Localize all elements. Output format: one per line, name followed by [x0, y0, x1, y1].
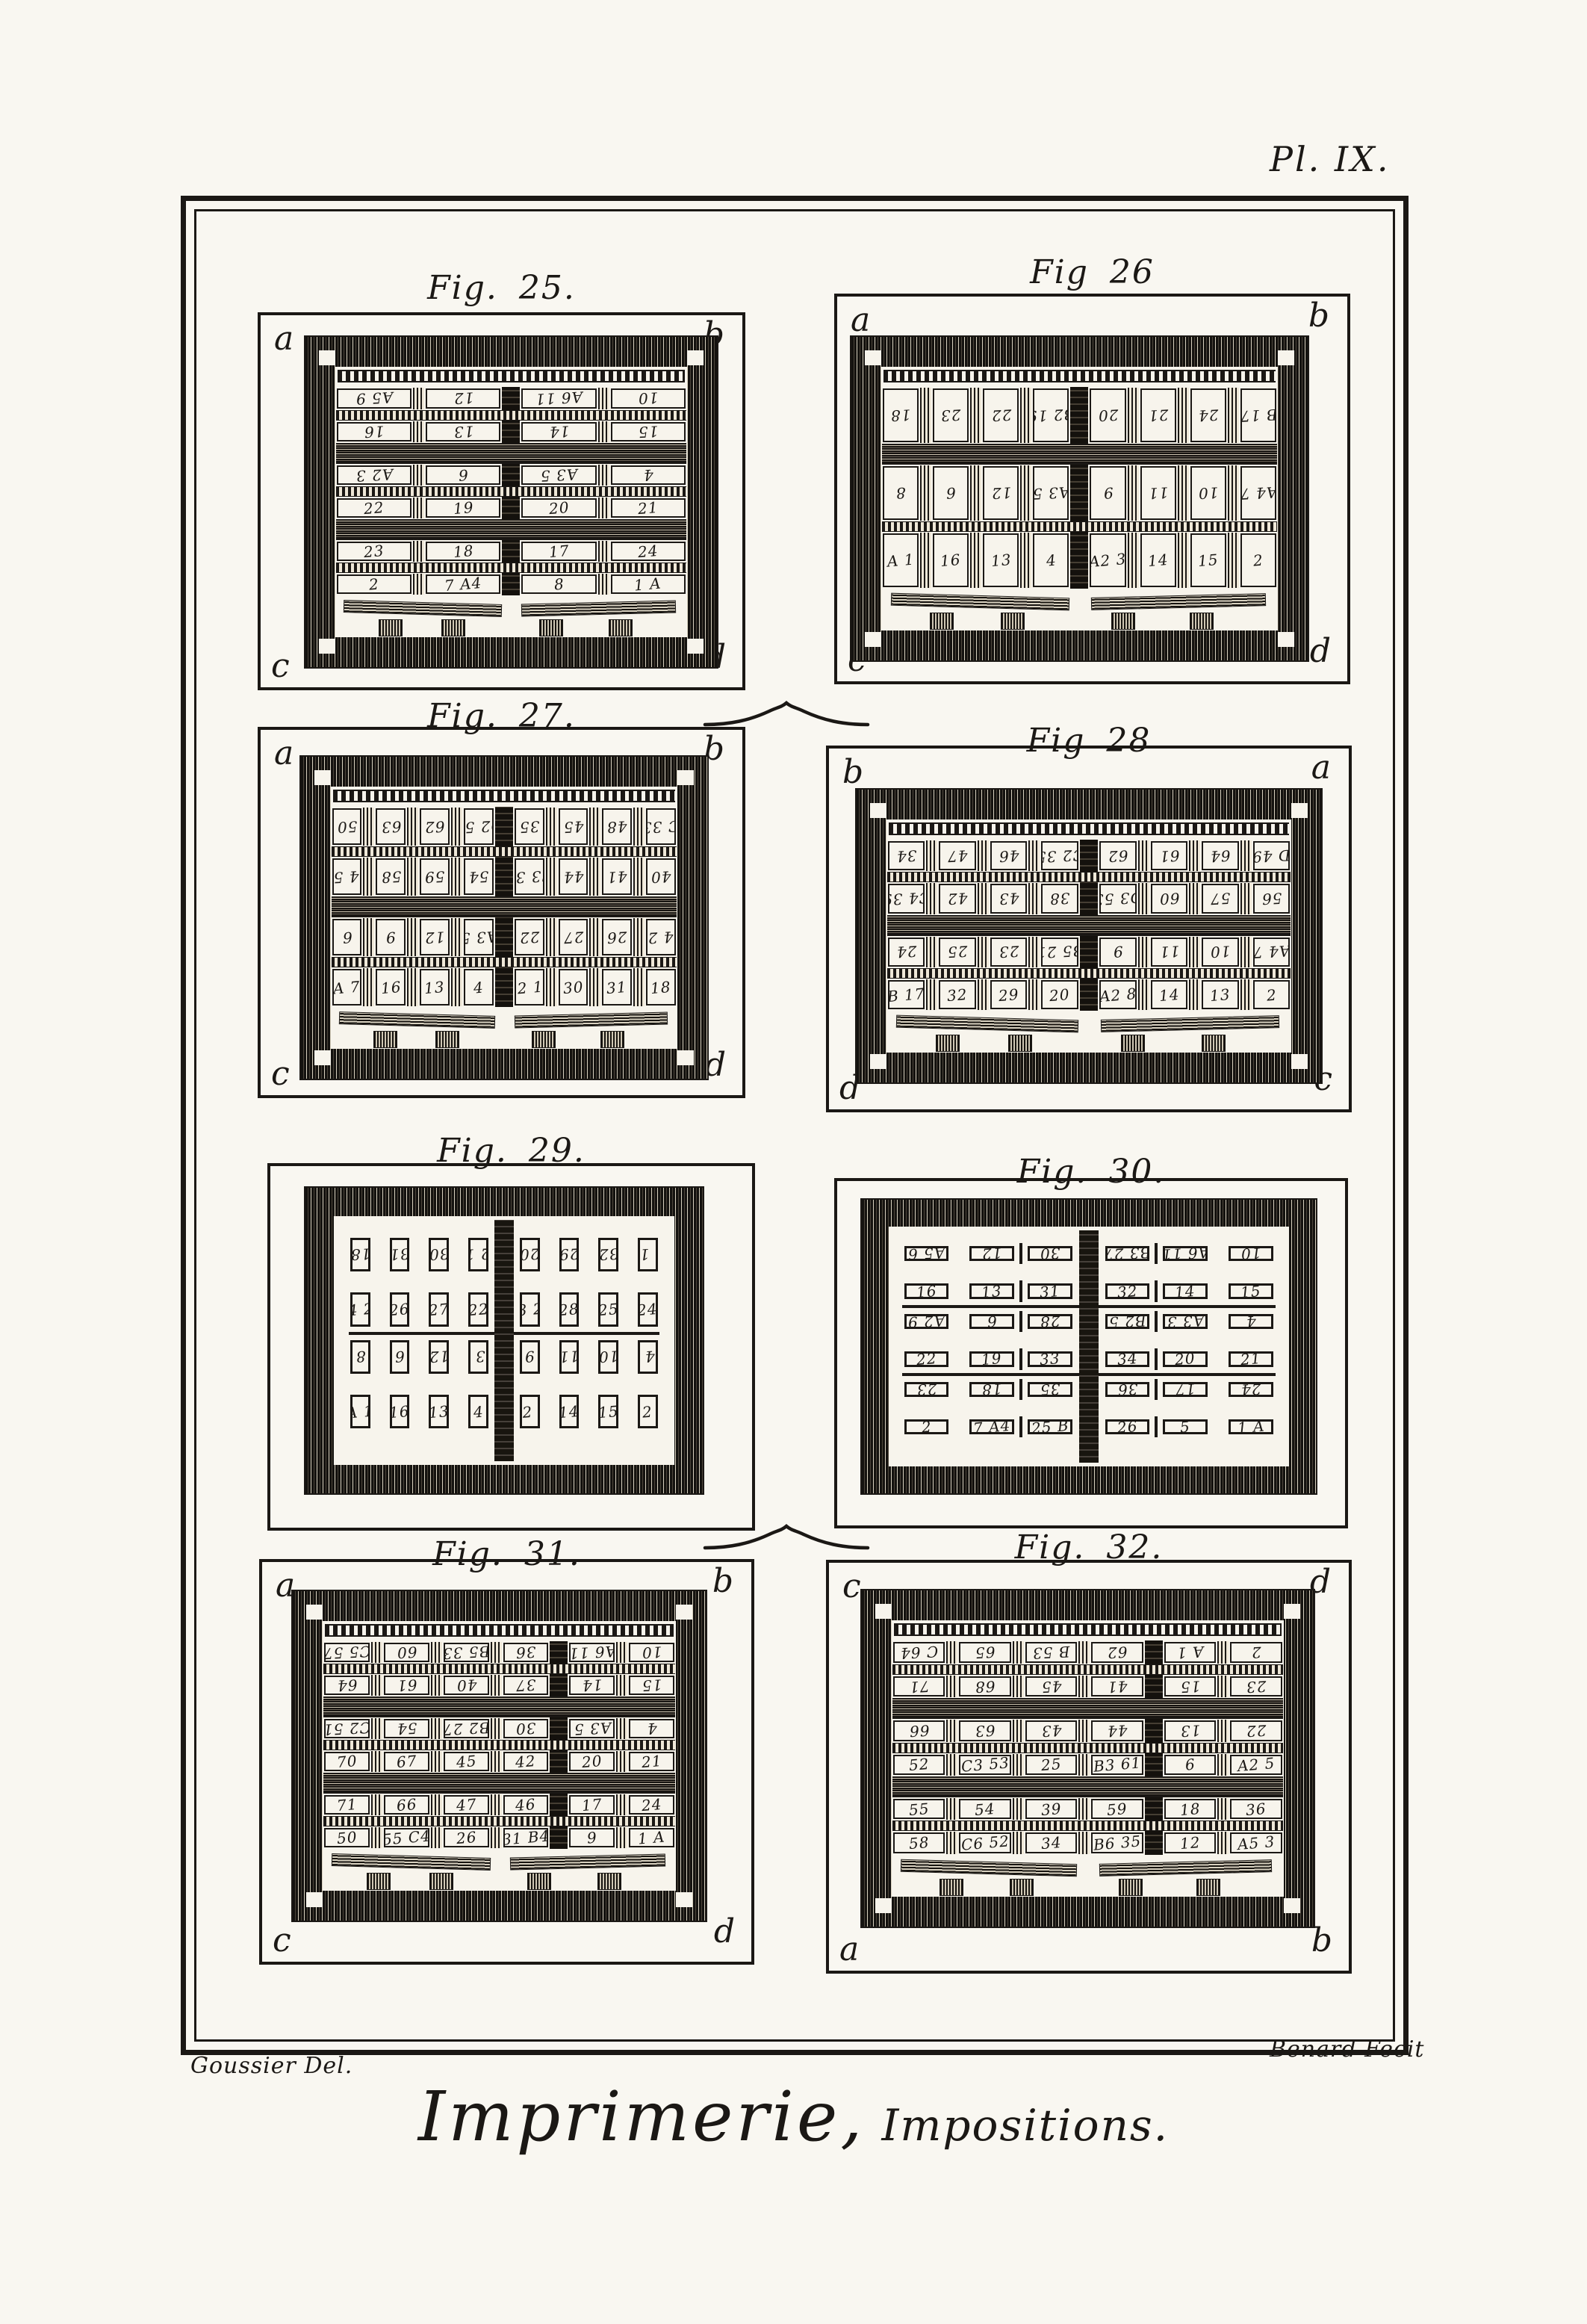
page-row: C5 5760B5 3336A6 1110 — [323, 1641, 676, 1664]
page-cell: A2 3 — [1090, 533, 1125, 587]
page-cell: 23 — [904, 1382, 949, 1397]
page-cell: 31 B4 — [503, 1828, 549, 1847]
page-label: 46 — [998, 846, 1019, 865]
page-cell: 7 A4 — [969, 1419, 1014, 1434]
foot-block — [441, 619, 465, 636]
page-label: 23 — [1246, 1677, 1267, 1696]
column-bar — [1128, 465, 1139, 521]
page-cell: 11 — [1151, 938, 1188, 967]
column-bar — [1013, 1754, 1024, 1776]
page-label: 14 — [548, 422, 570, 441]
page-label: B3 27 — [1105, 1246, 1150, 1261]
column-bar — [978, 937, 989, 967]
cross-bar — [887, 872, 1291, 882]
column-bar — [583, 1389, 594, 1434]
page-cell: 62 — [1091, 1642, 1143, 1662]
page-cell: 25 — [598, 1292, 618, 1326]
page-cell: C5 57 — [324, 1643, 370, 1662]
column-bar — [616, 1675, 627, 1696]
page-label: A3 5 — [1033, 483, 1069, 503]
page-cell: 21 — [611, 498, 686, 518]
column-bar — [954, 1308, 964, 1335]
page-cell: 26 — [444, 1828, 489, 1847]
page-cell: 42 — [939, 884, 976, 913]
column-bar — [946, 1676, 957, 1697]
page-cell: A4 7 — [1253, 938, 1291, 967]
page-cell: 9 — [1090, 466, 1125, 520]
column-bar — [414, 1287, 424, 1331]
chase-frame: A5 61230B3 27A6 1110161331321415A2 9628B… — [860, 1198, 1317, 1494]
foot-block — [1202, 1035, 1226, 1052]
column-bar — [970, 533, 981, 588]
corner-letter-tl: b — [842, 756, 863, 789]
foot-block — [532, 1031, 556, 1048]
page-cell: B2 5 — [1105, 1314, 1150, 1329]
page-cell: 25 — [939, 938, 976, 967]
column-bar — [491, 1642, 502, 1663]
page-label: 15 — [1179, 1677, 1201, 1696]
page-cell: C6 52 — [959, 1832, 1011, 1853]
page-row: 716647461724 — [323, 1794, 676, 1816]
corner-letter-tr: b — [712, 1565, 733, 1598]
page-label: 36 — [515, 1643, 537, 1662]
column-bar — [451, 968, 462, 1006]
column-bar — [1189, 840, 1200, 871]
page-label: 10 — [637, 389, 659, 408]
page-cell: A3 5 — [464, 919, 494, 955]
page-cell: A3 3 — [1163, 1314, 1208, 1329]
page-label: 25 — [947, 943, 969, 961]
page-cell: 9 — [569, 1828, 615, 1847]
column-bar — [1213, 1413, 1223, 1440]
page-cell: A 1 — [1164, 1642, 1217, 1662]
page-cell: A2 9 — [904, 1314, 949, 1329]
column-bar — [1070, 465, 1088, 521]
wedge-bar — [339, 1012, 496, 1029]
frame-notch — [306, 1892, 323, 1907]
page-cell: 2 — [1230, 1642, 1282, 1662]
page-cell: A4 7 — [638, 1340, 658, 1374]
page-row: 344746C2 35626164D 49 — [886, 840, 1291, 872]
page-label: 42 — [947, 889, 969, 908]
column-bar — [633, 968, 645, 1006]
page-cell: 6 — [1164, 1755, 1217, 1775]
page-label: 47 — [947, 846, 969, 865]
column-bar — [1228, 388, 1239, 443]
column-bar — [495, 857, 513, 896]
page-cell: 6 — [426, 465, 500, 485]
column-bar — [926, 883, 937, 914]
reglet-band — [889, 822, 1289, 835]
page-cell: 14 — [559, 1395, 580, 1428]
column-bar — [583, 1233, 594, 1277]
page-cell: 13 — [426, 422, 500, 441]
page-cell: 15 — [629, 1676, 674, 1695]
page-label: 12 — [453, 389, 474, 408]
page-cell: 4 — [464, 969, 494, 1005]
page-label: 24 — [1240, 1382, 1261, 1397]
page-cell: 4 — [1229, 1314, 1273, 1329]
page-row: 706745422021 — [323, 1750, 676, 1773]
page-cell: 61 — [384, 1676, 429, 1695]
page-label: 12 — [424, 928, 446, 946]
page-cell: 15 — [1190, 533, 1226, 587]
page-label: 10 — [598, 1348, 618, 1366]
column-bar — [1217, 1754, 1229, 1776]
foot-block — [1119, 1879, 1143, 1896]
column-bar — [502, 497, 520, 519]
page-cell: 30 — [503, 1719, 549, 1738]
page-cell: 44 — [559, 858, 588, 895]
column-bar — [413, 465, 424, 486]
page-label: 10 — [1197, 483, 1219, 502]
page-label: 36 — [1117, 1382, 1138, 1397]
column-bar — [550, 1826, 568, 1849]
page-cell: B5 21 — [1041, 938, 1078, 967]
page-cell: B4 23 — [646, 919, 676, 955]
page-label: 13 — [423, 978, 445, 997]
page-cell: 6 — [332, 919, 362, 955]
column-bar — [954, 1376, 964, 1403]
page-label: 15 — [1197, 551, 1219, 570]
frame-notch — [870, 1054, 886, 1069]
column-bar — [598, 574, 609, 595]
page-cell: A2 3 — [337, 465, 411, 485]
forme: 182322B2 19202124B 178612A3 591110A4 7A … — [881, 367, 1278, 631]
frame-notch — [865, 632, 881, 647]
reglet-band — [338, 370, 685, 382]
page-cell: 29 — [559, 1238, 580, 1271]
column-bar — [495, 807, 513, 846]
page-label: 45 — [1040, 1677, 1062, 1696]
page-label: 45 — [562, 817, 584, 836]
engraver-credit-right: Benard Fecit — [1270, 2036, 1424, 2063]
column-bar — [1138, 883, 1149, 914]
column-bar — [1020, 533, 1031, 588]
page-label: 60 — [1158, 889, 1180, 908]
page-cell: 36 — [1105, 1382, 1150, 1397]
page-label: C4 39 — [888, 888, 925, 908]
column-bar — [1013, 1832, 1024, 1853]
page-cell: 14 — [521, 422, 596, 441]
page-cell: B6 35 — [1091, 1832, 1143, 1853]
page-label: 20 — [1097, 406, 1119, 424]
page-label: 9 — [1102, 484, 1114, 503]
page-label: 39 — [1040, 1799, 1062, 1818]
foot-block — [1010, 1879, 1034, 1896]
page-label: 29 — [559, 1245, 580, 1264]
column-bar — [946, 1798, 957, 1820]
column-bar — [495, 967, 513, 1007]
frame-notch — [875, 1604, 892, 1619]
page-row: A5 912A6 1110 — [335, 387, 687, 409]
page-label: 15 — [641, 1676, 662, 1695]
column-bar — [598, 465, 609, 486]
page-label: 1 A — [1237, 1419, 1265, 1434]
cross-bar — [323, 1740, 675, 1750]
column-bar — [946, 1641, 957, 1663]
page-label: 30 — [515, 1719, 537, 1738]
page-cell: 34 — [1025, 1832, 1078, 1853]
column-bar — [1213, 1376, 1223, 1403]
page-row: D4 55585954C3 37444140 — [331, 857, 677, 896]
column-bar — [633, 918, 645, 956]
column-bar — [431, 1794, 442, 1815]
page-cell: 19 — [969, 1351, 1014, 1366]
page-cell: 52 — [893, 1755, 945, 1775]
column-bar — [623, 1287, 633, 1331]
page-label: A4 7 — [1253, 942, 1291, 962]
page-cell: 10 — [598, 1340, 618, 1374]
figure-box-fig30: Fig. 30. A5 61230B3 27A6 111016133132141… — [834, 1178, 1348, 1528]
page-label: 21 — [1147, 406, 1169, 424]
page-cell: D4 55 — [332, 858, 362, 895]
figure-title: Fig. 31. — [262, 1535, 751, 1573]
page-cell: 54 — [959, 1799, 1011, 1819]
page-label: C3 53 — [960, 1755, 1010, 1775]
column-bar — [1028, 979, 1040, 1010]
figure-title: Fig. 32. — [829, 1528, 1349, 1567]
page-cell: 12 — [420, 919, 450, 955]
column-bar — [598, 388, 609, 409]
column-bar — [453, 1287, 464, 1331]
corner-letter-br: d — [714, 1915, 735, 1948]
figure-box-fig28: Fig 28 badc344746C2 35626164D 49C4 39424… — [826, 746, 1352, 1112]
corner-letter-bl: c — [271, 1058, 290, 1091]
page-label: 2 — [642, 1402, 653, 1421]
page-cell: 18 — [646, 969, 676, 1005]
page-cell: 65 — [959, 1642, 1011, 1662]
page-label: 37 — [515, 1676, 537, 1695]
page-label: 18 — [981, 1382, 1003, 1397]
cross-bar — [336, 486, 686, 497]
page-label: 62 — [424, 817, 446, 836]
page-row: A2 36A3 54 — [335, 464, 687, 486]
page-cell: 14 — [569, 1676, 615, 1695]
page-label: 26 — [606, 928, 628, 946]
page-cell: 54 — [464, 858, 494, 895]
column-bar — [375, 1233, 385, 1277]
column-bar — [1145, 1719, 1163, 1742]
foot-block — [1111, 613, 1135, 630]
column-bar — [546, 808, 557, 846]
page-label: A2 8 — [1099, 984, 1137, 1005]
chase-frame: 344746C2 35626164D 49C4 39424338D3 53605… — [855, 788, 1323, 1084]
cross-bar — [323, 1816, 675, 1826]
page-label: 58 — [908, 1833, 930, 1853]
frame-notch — [1291, 1054, 1308, 1069]
page-cell: B2 27 — [444, 1719, 489, 1738]
column-bar — [413, 388, 424, 409]
page-cell: 24 — [1190, 388, 1226, 442]
page-cell: 17 — [569, 1795, 615, 1815]
column-bar — [502, 573, 520, 595]
page-label: B3 61 — [1093, 1755, 1142, 1775]
chase-frame: 506362D2 51354548C 33D4 55585954C3 37444… — [299, 755, 709, 1080]
page-cell: A 1 — [883, 533, 919, 587]
column-bar — [1145, 1675, 1163, 1698]
page-label: 30 — [429, 1245, 449, 1264]
column-bar — [1080, 979, 1098, 1011]
foot-block — [930, 613, 954, 630]
page-row: 5055 C42631 B491 A — [323, 1826, 676, 1849]
page-cell: 8 — [883, 466, 919, 520]
page-cell: 5 — [1163, 1419, 1208, 1434]
cross-bar — [892, 1698, 1283, 1719]
column-bar — [1138, 840, 1149, 871]
page-label: 16 — [364, 422, 385, 441]
frame-notch — [319, 639, 335, 654]
page-cell: 18 — [426, 542, 500, 561]
page-label: 6 — [1184, 1756, 1196, 1774]
page-label: 58 — [380, 867, 402, 886]
page-label: 33 — [1039, 1351, 1060, 1366]
frame-notch — [687, 350, 704, 365]
page-cell: 47 — [444, 1795, 489, 1815]
page-label: 59 — [424, 867, 446, 886]
wedge-bar — [344, 600, 502, 617]
page-cell: 24 — [629, 1795, 674, 1815]
column-bar — [502, 421, 520, 443]
frame-notch — [1291, 803, 1308, 818]
frame-notch — [676, 1892, 692, 1907]
page-cell: 57 — [1202, 884, 1239, 913]
page-cell: 22 — [983, 388, 1019, 442]
column-bar — [1028, 937, 1040, 967]
column-bar — [1217, 1720, 1229, 1741]
cross-bar — [336, 563, 686, 573]
page-cell: A6 11 — [521, 388, 596, 408]
column-bar — [589, 808, 600, 846]
column-bar — [363, 808, 374, 846]
column-bar — [583, 1335, 594, 1379]
column-bar — [413, 421, 424, 442]
column-bar — [1213, 1277, 1223, 1304]
page-label: 12 — [981, 1246, 1003, 1261]
page-cell: 24 — [611, 542, 686, 561]
page-cell: 46 — [990, 841, 1028, 870]
page-label: 11 — [1158, 943, 1180, 961]
column-bar — [491, 1794, 502, 1815]
page-label: B 17 — [638, 1245, 658, 1265]
page-label: B5 33 — [444, 1643, 489, 1662]
column-bar — [623, 1233, 633, 1277]
page-cell: 11 — [559, 1340, 580, 1374]
column-bar — [926, 840, 937, 871]
wedge-bar — [331, 1853, 490, 1871]
page-cell: 23 — [933, 388, 969, 442]
page-label: 18 — [453, 542, 474, 561]
page-label: 34 — [1117, 1351, 1138, 1366]
page-label: 2 — [1251, 1643, 1262, 1662]
column-bar — [616, 1827, 627, 1848]
page-cell: 22 — [1230, 1720, 1282, 1741]
column-bar — [1078, 1832, 1090, 1853]
page-cell: 1 A — [1229, 1419, 1273, 1434]
page-cell: C3 53 — [959, 1755, 1011, 1775]
page-row: 16131415 — [335, 421, 687, 443]
chase-frame: C 6465B 5362A 12716845411523666343441322… — [860, 1589, 1315, 1927]
page-label: 17 — [1175, 1382, 1196, 1397]
figure-title: Fig 28 — [829, 722, 1349, 760]
page-cell: 29 — [990, 980, 1028, 1009]
column-bar — [1020, 388, 1031, 443]
wedge-bar — [521, 601, 677, 617]
page-label: 71 — [908, 1677, 930, 1696]
page-cell: 11 — [1140, 466, 1176, 520]
column-bar — [371, 1794, 382, 1815]
page-cell: 7 A4 — [426, 574, 500, 594]
chase-frame: A5 912A6 111016131415A2 36A3 54221920212… — [304, 335, 718, 669]
page-label: A2 3 — [355, 465, 393, 485]
page-cell: C 64 — [893, 1642, 945, 1662]
page-label: 20 — [1049, 985, 1070, 1004]
page-label: 17 — [581, 1795, 603, 1815]
column-bar — [1128, 533, 1139, 588]
page-label: 20 — [548, 498, 570, 518]
page-label: 32 — [946, 985, 968, 1004]
cross-bar — [332, 846, 677, 857]
page-cell: 16 — [390, 1395, 410, 1428]
page-label: C 33 — [646, 817, 676, 837]
foot-block — [1008, 1035, 1032, 1052]
frame-notch — [1284, 1898, 1300, 1913]
column-bar — [1078, 1676, 1090, 1697]
page-label: 44 — [562, 867, 584, 886]
column-bar — [407, 858, 418, 896]
column-bar — [1145, 1831, 1163, 1854]
page-cell: 10 — [1229, 1246, 1273, 1261]
page-label: A2 3 — [520, 1401, 540, 1422]
page-cell: 12 — [429, 1340, 449, 1374]
forme: 183130B2 19202932B 17B4 23262722B3 21282… — [334, 1216, 674, 1466]
frame-notch — [677, 1050, 694, 1065]
cross-bar — [336, 443, 686, 464]
page-label: 26 — [390, 1300, 410, 1319]
page-cell: B2 19 — [468, 1238, 488, 1271]
column-bar — [954, 1413, 964, 1440]
column-bar — [414, 1389, 424, 1434]
column-bar — [491, 1718, 502, 1739]
forme: A5 912A6 111016131415A2 36A3 54221920212… — [335, 367, 687, 637]
page-cell: 27 — [429, 1292, 449, 1326]
page-cell: 14 — [1163, 1283, 1208, 1298]
column-bar — [371, 1751, 382, 1772]
page-label: 21 — [641, 1752, 662, 1771]
cross-bar — [882, 521, 1277, 532]
furniture — [332, 1010, 676, 1049]
page-label: B4 23 — [646, 927, 676, 947]
page-label: 23 — [916, 1382, 937, 1397]
page-cell: 45 — [1025, 1676, 1078, 1696]
page-label: 24 — [1197, 406, 1219, 424]
reglet-band — [325, 1624, 674, 1637]
page-row: A 716134B2 19303118 — [331, 967, 677, 1007]
page-cell: 23 — [1230, 1676, 1282, 1696]
column-bar — [1217, 1798, 1229, 1820]
page-row: 666343441322 — [892, 1719, 1284, 1742]
column-bar — [502, 464, 520, 486]
page-cell: 64 — [324, 1676, 370, 1695]
page-cell: 28 — [1028, 1314, 1072, 1329]
column-bar — [1138, 937, 1149, 967]
cross-bar — [336, 519, 686, 540]
page-label: 22 — [468, 1300, 488, 1319]
figure-box-fig29: Fig. 29. 183130B2 19202932B 17B4 2326272… — [267, 1163, 755, 1531]
furniture — [883, 592, 1276, 630]
column-bar — [375, 1335, 385, 1379]
column-bar — [1128, 388, 1139, 443]
